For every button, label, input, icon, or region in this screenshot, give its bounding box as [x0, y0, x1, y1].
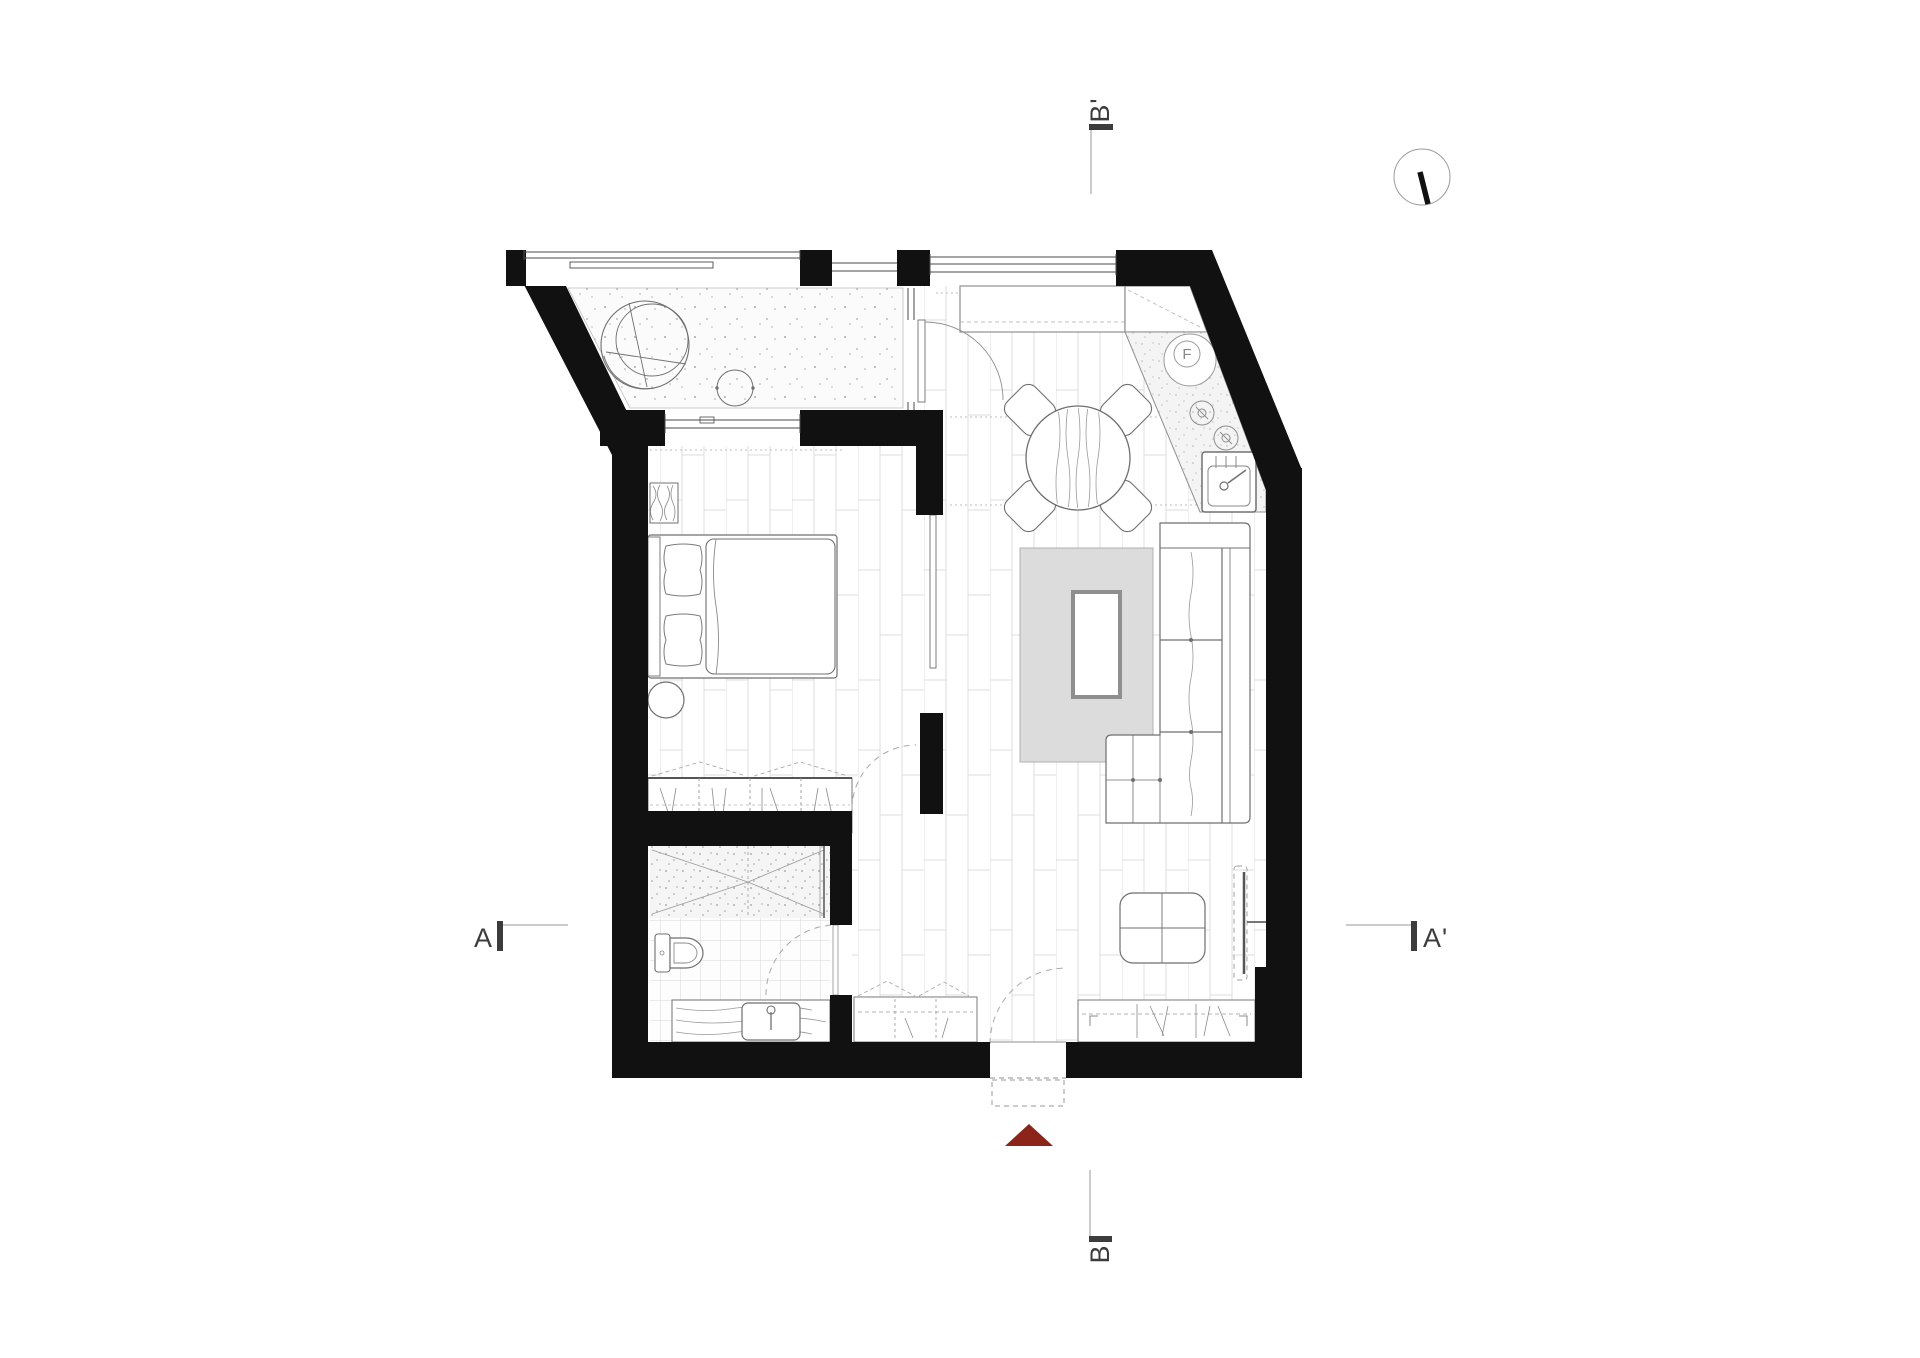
kitchen-sink [1202, 452, 1256, 512]
wall-right [1266, 468, 1302, 1078]
wall-top-corner [506, 250, 526, 286]
living-window-a [832, 263, 897, 271]
hall-wardrobe [1078, 1000, 1255, 1042]
wall-balcony-bedroom-right [800, 410, 943, 446]
balcony-floor [568, 288, 903, 408]
entrance-marker [1005, 1124, 1053, 1146]
wall-partition-lower [920, 713, 943, 814]
coffee-table [1073, 592, 1120, 697]
mattress [706, 539, 835, 674]
living-window-b [930, 254, 1116, 275]
bathroom-vanity [672, 1000, 830, 1042]
entrance-threshold-floor [990, 1042, 1066, 1078]
wall-bottom-right [1066, 1042, 1302, 1078]
svg-text:A': A' [1423, 923, 1448, 953]
bed [648, 535, 837, 678]
section-marker-b: B [1085, 1170, 1115, 1264]
wall-bedroom-hall [648, 811, 852, 846]
wall-partition-upper [916, 446, 943, 515]
wall-left [612, 445, 648, 1078]
fridge: F [1164, 334, 1216, 386]
pillow [664, 544, 702, 596]
balcony-partition-glazing [908, 288, 914, 410]
section-marker-a: A [474, 921, 568, 953]
north-indicator-icon [1394, 149, 1450, 205]
fridge-label: F [1182, 346, 1191, 363]
bedroom-window [665, 414, 800, 433]
section-marker-a-prime: A' [1346, 921, 1448, 953]
bedroom-stool [648, 682, 684, 718]
nightstand [650, 483, 678, 523]
pouf-ottoman [1120, 893, 1205, 963]
entrance-step [992, 1080, 1064, 1106]
svg-text:A: A [474, 923, 493, 953]
wall-pillar [800, 250, 832, 286]
pillow [664, 614, 702, 666]
wall-bathroom-right-lower [830, 995, 852, 1042]
bedroom-furniture [648, 483, 852, 833]
wall-pillar [897, 250, 930, 286]
kitchen-counter-top [960, 286, 1125, 332]
bedroom-door-gap-floor [852, 811, 918, 846]
svg-text:B: B [1085, 1244, 1115, 1263]
wall-bottom-left [612, 1042, 990, 1078]
svg-text:B': B' [1085, 97, 1115, 122]
floor-plan-sheet: F [0, 0, 1920, 1358]
wall-bathroom-right-upper [830, 846, 852, 925]
balcony-glazing [524, 250, 800, 268]
sliding-door-panel [930, 515, 936, 668]
floor-plan-drawing: F [0, 0, 1920, 1358]
wall-balcony-bedroom-left [600, 410, 665, 446]
section-marker-b-prime: B' [1085, 97, 1115, 194]
